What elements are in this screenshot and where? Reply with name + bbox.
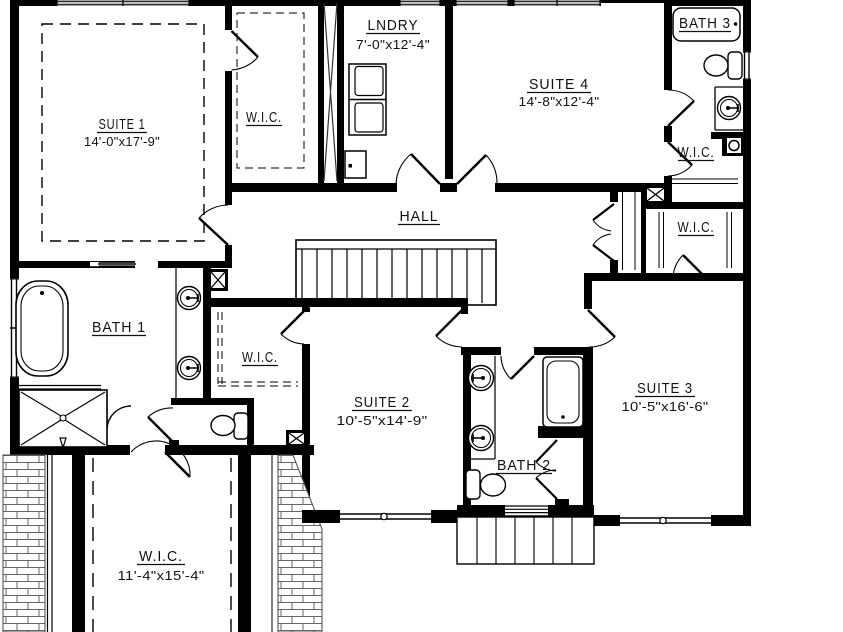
svg-text:SUITE 4: SUITE 4	[529, 76, 589, 93]
svg-text:SUITE 3: SUITE 3	[637, 380, 693, 397]
svg-text:14'-8"x12'-4": 14'-8"x12'-4"	[519, 95, 600, 109]
svg-text:W.I.C.: W.I.C.	[678, 144, 715, 161]
svg-text:W.I.C.: W.I.C.	[678, 219, 715, 236]
svg-text:10'-5"x14'-9": 10'-5"x14'-9"	[337, 414, 428, 428]
svg-text:SUITE 1: SUITE 1	[99, 116, 146, 133]
svg-text:W.I.C.: W.I.C.	[242, 349, 278, 366]
svg-text:HALL: HALL	[400, 208, 439, 225]
svg-text:LNDRY: LNDRY	[368, 17, 419, 34]
svg-text:7'-0"x12'-4": 7'-0"x12'-4"	[356, 38, 430, 52]
svg-text:W.I.C.: W.I.C.	[139, 548, 183, 565]
svg-text:SUITE 2: SUITE 2	[354, 394, 410, 411]
svg-text:W.I.C.: W.I.C.	[246, 109, 282, 126]
svg-text:10'-5"x16'-6": 10'-5"x16'-6"	[622, 400, 709, 414]
svg-text:BATH 3: BATH 3	[679, 15, 731, 32]
svg-text:BATH 2: BATH 2	[497, 457, 551, 474]
svg-text:11'-4"x15'-4": 11'-4"x15'-4"	[118, 569, 205, 583]
svg-text:14'-0"x17'-9": 14'-0"x17'-9"	[84, 135, 160, 149]
svg-text:BATH 1: BATH 1	[92, 319, 146, 336]
